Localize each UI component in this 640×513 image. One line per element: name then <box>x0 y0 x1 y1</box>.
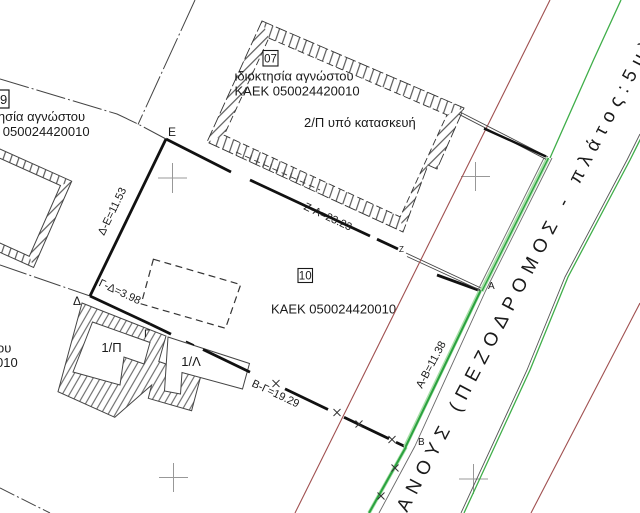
svg-text:1/Λ: 1/Λ <box>181 354 201 369</box>
svg-text:ου: ου <box>0 341 11 356</box>
svg-text:Γ: Γ <box>144 328 150 340</box>
svg-text:Ε: Ε <box>168 125 176 139</box>
svg-text:Α: Α <box>488 281 495 292</box>
svg-text:1/Π: 1/Π <box>101 340 121 355</box>
svg-text:ΚΑΕΚ 050024420010: ΚΑΕΚ 050024420010 <box>235 84 360 99</box>
svg-text:9: 9 <box>0 92 7 107</box>
svg-text:Δ: Δ <box>73 294 81 308</box>
svg-text:10: 10 <box>299 271 312 283</box>
svg-text:Ζ: Ζ <box>399 245 404 254</box>
svg-text:07: 07 <box>264 54 277 66</box>
svg-text:ΚΑΕΚ 050024420010: ΚΑΕΚ 050024420010 <box>0 124 90 139</box>
svg-text:ΚΑΕΚ 050024420010: ΚΑΕΚ 050024420010 <box>271 302 396 317</box>
svg-text:2/Π υπό κατασκευή: 2/Π υπό κατασκευή <box>304 115 416 130</box>
svg-text:010: 010 <box>0 355 18 370</box>
svg-text:ιδιοκτησία αγνώστου: ιδιοκτησία αγνώστου <box>0 109 85 124</box>
svg-text:ιδιοκτησία αγνώστου: ιδιοκτησία αγνώστου <box>235 69 354 84</box>
